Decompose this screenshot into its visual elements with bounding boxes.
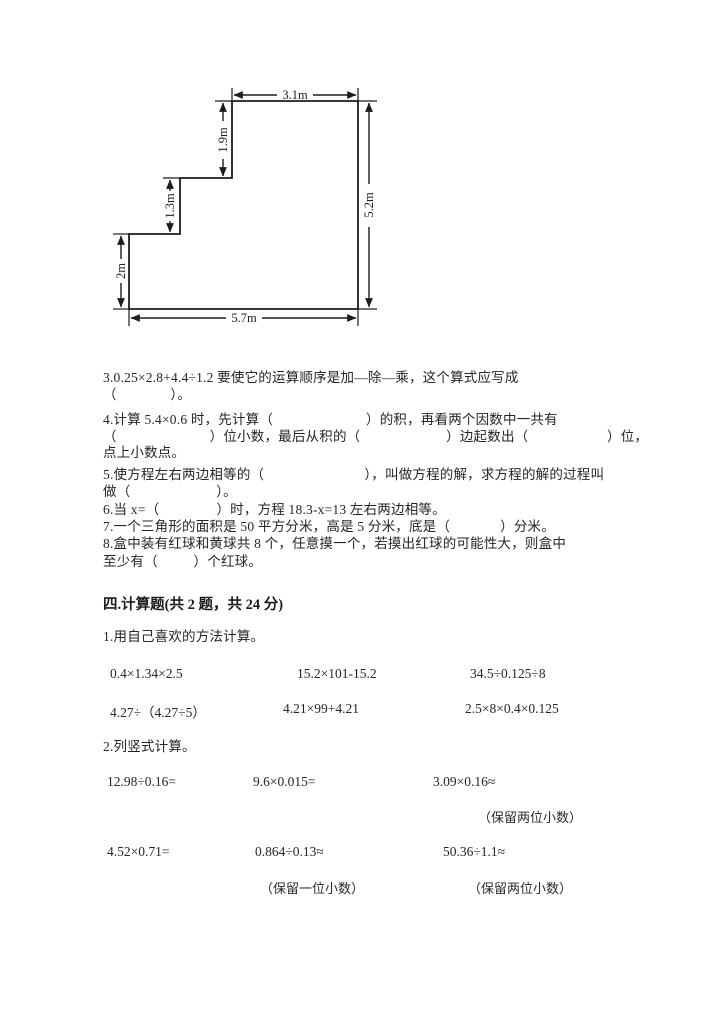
calc-expression: 9.6×0.015=: [253, 774, 315, 790]
calc-expression: 3.09×0.16≈: [433, 774, 495, 790]
question-8-line-2: 至少有（ ）个红球。: [103, 553, 262, 571]
dim-label-top: 3.1m: [282, 88, 308, 102]
calc-expression: 12.98÷0.16=: [107, 774, 176, 790]
worksheet-page: 3.1m 5.2m 5.7m 2m 1.3m 1.9m 3.0.25×2.8+4…: [0, 0, 720, 1018]
section-4-sub1: 1.用自己喜欢的方法计算。: [103, 628, 264, 646]
question-5-line-2: 做（ ）。: [103, 483, 237, 501]
calc-expression: 4.27÷（4.27÷5）: [110, 701, 206, 721]
question-7: 7.一个三角形的面积是 50 平方分米，高是 5 分米，底是（ ）分米。: [103, 518, 555, 536]
question-4-line-1: 4.计算 5.4×0.6 时，先计算（ ）的积，再看两个因数中一共有: [103, 411, 558, 429]
dim-label-mid-step: 1.3m: [163, 193, 177, 219]
section-4-sub2: 2.列竖式计算。: [103, 738, 196, 756]
staircase-figure: 3.1m 5.2m 5.7m 2m 1.3m 1.9m: [0, 0, 720, 345]
question-5-line-1: 5.使方程左右两边相等的（ ），叫做方程的解，求方程的解的过程叫: [103, 466, 604, 484]
calc-expression: 50.36÷1.1≈: [443, 844, 505, 860]
rounding-note: （保留两位小数）: [478, 807, 582, 826]
calc-expression: 4.52×0.71=: [107, 844, 169, 860]
dim-label-right: 5.2m: [362, 192, 376, 218]
question-4-line-3: 点上小数点。: [103, 444, 185, 462]
question-3-line-2: （ ）。: [103, 386, 191, 404]
dim-label-left: 2m: [114, 263, 128, 279]
calc-expression: 34.5÷0.125÷8: [470, 666, 546, 682]
rounding-note: （保留一位小数）: [260, 878, 364, 897]
calc-expression: 15.2×101-15.2: [297, 666, 377, 682]
dim-label-bottom: 5.7m: [231, 311, 257, 325]
dim-label-upper-step: 1.9m: [216, 127, 230, 153]
calc-expression: 2.5×8×0.4×0.125: [465, 701, 559, 717]
calc-expression: 0.4×1.34×2.5: [110, 666, 183, 682]
question-6: 6.当 x=（ ）时，方程 18.3-x=13 左右两边相等。: [103, 501, 446, 519]
calc-expression: 4.21×99+4.21: [283, 701, 359, 717]
question-3-line-1: 3.0.25×2.8+4.4÷1.2 要使它的运算顺序是加—除—乘，这个算式应写…: [103, 369, 519, 387]
calc-expression: 0.864÷0.13≈: [255, 844, 324, 860]
question-8-line-1: 8.盒中装有红球和黄球共 8 个，任意摸一个，若摸出红球的可能性大，则盒中: [103, 535, 566, 553]
section-4-title: 四.计算题(共 2 题，共 24 分): [103, 593, 283, 614]
rounding-note: （保留两位小数）: [468, 878, 572, 897]
